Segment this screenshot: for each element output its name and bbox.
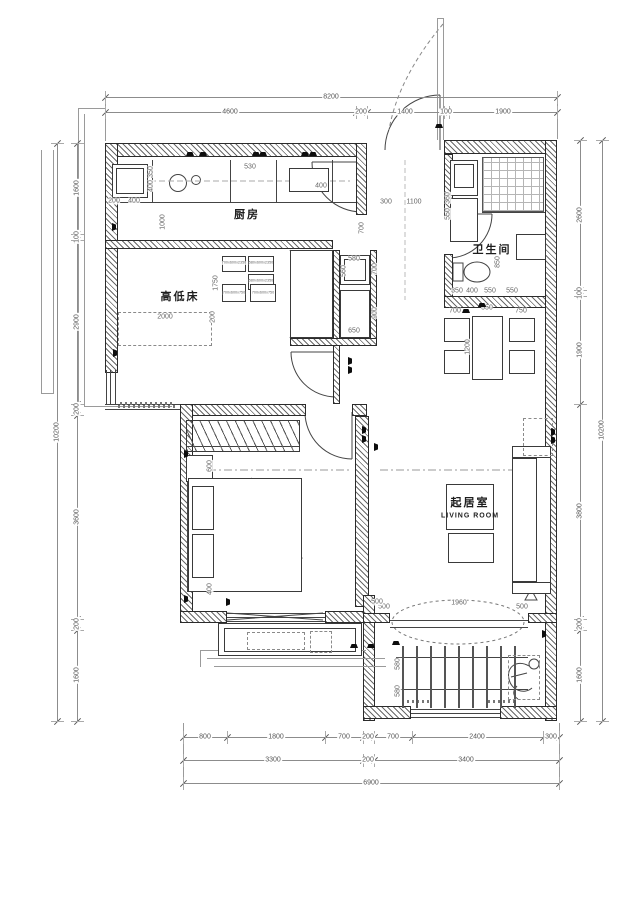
dimension-label: 100 xyxy=(577,286,584,300)
coffee-table xyxy=(448,533,494,563)
wall-balcony-top-right xyxy=(528,613,557,623)
dimension-line xyxy=(580,140,581,721)
dimension-label: 200 xyxy=(354,109,368,116)
inner-dimension-label: 1100 xyxy=(406,199,421,206)
exterior-line xyxy=(41,393,54,394)
balcony-threshold xyxy=(390,627,528,628)
counter-sep xyxy=(332,160,333,202)
extension-line xyxy=(596,140,609,141)
wall-bedroom-bottom-left xyxy=(180,611,227,623)
dimension-label: 100 xyxy=(74,230,81,244)
extension-line xyxy=(105,91,106,104)
extension-line xyxy=(183,754,184,767)
window-balcony xyxy=(411,717,500,718)
extension-line xyxy=(183,777,184,790)
window-bedroom xyxy=(227,617,325,618)
window-left xyxy=(106,370,107,404)
dimension-label: 1900 xyxy=(494,109,512,116)
dimension-label: 2400 xyxy=(468,734,486,741)
dimension-label: 800 xyxy=(198,734,212,741)
sofa-armrest xyxy=(512,582,551,594)
inner-dimension-label: 300 xyxy=(380,199,392,206)
inner-dimension-label: 200 xyxy=(210,311,217,323)
window-left xyxy=(110,370,111,404)
inner-dimension-label: 700x600x750 xyxy=(223,291,245,295)
dimension-label: 100 xyxy=(439,109,453,116)
dimension-label: 200 xyxy=(577,617,584,631)
extension-line xyxy=(574,140,587,141)
inner-dimension-label: 1960 xyxy=(451,600,467,607)
extension-line xyxy=(71,721,84,722)
window-left xyxy=(115,370,116,404)
dimension-line xyxy=(105,112,557,113)
extension-line xyxy=(71,143,84,144)
dimension-label: 8200 xyxy=(322,94,340,101)
extension-line xyxy=(557,106,558,119)
counter-sep xyxy=(230,160,231,202)
extension-line xyxy=(596,721,609,722)
inner-dimension-label: 580 xyxy=(395,658,402,670)
dimension-label: 1600 xyxy=(74,666,81,684)
inner-dimension-label: 750 xyxy=(515,308,527,315)
washer-inner xyxy=(454,164,474,188)
fridge-inner xyxy=(116,168,144,194)
living-rug-ellipse xyxy=(392,600,524,644)
dimension-label: 1800 xyxy=(267,734,285,741)
extension-line xyxy=(325,731,326,744)
inner-dimension-label: 900 xyxy=(372,307,379,319)
inner-dimension-label: 580x600x2350 xyxy=(249,279,273,283)
dimension-label: 200 xyxy=(74,402,81,416)
room-label: LIVING ROOM xyxy=(441,513,499,520)
extension-line xyxy=(559,731,560,744)
shower-tile-grid xyxy=(482,157,544,212)
dimension-label: 3600 xyxy=(74,508,81,526)
extension-line xyxy=(574,721,587,722)
wall-storage-bottom xyxy=(290,338,377,346)
window-balcony xyxy=(411,709,500,710)
pillow xyxy=(192,534,214,578)
inner-dimension-label: 550 xyxy=(484,288,496,295)
wall-bath-bottom xyxy=(444,296,557,308)
room-label: 高低床 xyxy=(161,288,200,304)
dimension-label: 1400 xyxy=(396,109,414,116)
extension-line xyxy=(412,731,413,744)
inner-dimension-label: 2000 xyxy=(157,314,173,321)
dimension-label: 700 xyxy=(386,734,400,741)
sill-bunk xyxy=(105,409,180,410)
inner-dimension-label: 550 xyxy=(506,288,518,295)
counter-edge xyxy=(118,202,356,203)
inner-dimension-label: 500 xyxy=(516,604,528,611)
room-label: 厨房 xyxy=(234,206,260,222)
wall-kitchen-right xyxy=(356,143,367,215)
counter-sep xyxy=(276,160,277,202)
inner-dimension-label: 1200 xyxy=(465,339,472,355)
dimension-label: 3400 xyxy=(457,757,475,764)
inner-dimension-label: 580 xyxy=(395,685,402,697)
extension-line xyxy=(227,731,228,744)
inner-dimension-label: 850 xyxy=(495,256,502,268)
dimension-label: 1600 xyxy=(577,666,584,684)
extension-line xyxy=(105,106,106,119)
inner-dimension-label: 1000 xyxy=(160,214,167,230)
inner-dimension-label: 400 xyxy=(315,183,327,190)
tall-cabinet xyxy=(290,250,333,338)
drying-rack-slats xyxy=(402,674,520,708)
exterior-line xyxy=(53,150,54,394)
wardrobe xyxy=(186,420,300,452)
kitchen-sink-icon xyxy=(170,175,201,192)
extension-line xyxy=(574,404,587,405)
dimension-label: 10200 xyxy=(599,419,606,440)
inner-dimension-label: 400 xyxy=(466,288,478,295)
dining-chair xyxy=(509,350,535,374)
extension-line xyxy=(51,143,64,144)
inner-dimension-label: 530 xyxy=(244,164,256,171)
wall-bedroom-top xyxy=(180,404,306,416)
entry-door-arc xyxy=(385,95,440,150)
window-bedroom xyxy=(227,621,325,622)
bay-step-line xyxy=(200,650,201,667)
bath-sink-counter xyxy=(516,234,546,260)
inner-dimension-label: 360 xyxy=(445,192,452,204)
inner-dimension-label: 700 xyxy=(372,263,379,275)
entry-axis xyxy=(437,18,438,140)
shower-edge xyxy=(482,212,545,213)
dryer-column xyxy=(450,198,478,242)
inner-dimension-label: 350 xyxy=(451,288,463,295)
dimension-label: 3300 xyxy=(264,757,282,764)
inner-dimension-label: 700 xyxy=(359,222,366,234)
dining-table xyxy=(472,316,503,380)
dimension-label: 200 xyxy=(74,617,81,631)
inner-dimension-label: 580 xyxy=(348,256,360,263)
wall-balcony-top-left xyxy=(363,613,390,623)
dimension-label: 2900 xyxy=(74,313,81,331)
inner-dimension-label: 700x600x750 xyxy=(252,291,274,295)
bay-dashed-box xyxy=(310,631,332,653)
inner-dimension-label: 350 xyxy=(148,166,155,178)
inner-dimension-label: 650 xyxy=(348,328,360,335)
insulation-dots xyxy=(120,402,172,405)
entry-axis xyxy=(443,18,444,140)
bedroom-door-arc xyxy=(305,412,352,459)
wall-bedroom-bottom-right xyxy=(325,611,367,623)
insulation-dots xyxy=(118,405,176,408)
wall-storage-left xyxy=(333,250,340,404)
dimension-label: 300 xyxy=(544,734,558,741)
room-label: 起居室 xyxy=(451,494,490,510)
extension-line xyxy=(557,91,558,104)
dimension-label: 1900 xyxy=(577,341,584,359)
dimension-label: 4600 xyxy=(221,109,239,116)
inner-dimension-label: 560 xyxy=(341,265,348,277)
balcony-threshold xyxy=(390,620,528,621)
inner-dimension-label: 400 xyxy=(148,180,155,192)
bay-dashed-box xyxy=(247,632,305,650)
dimension-label: 10200 xyxy=(54,421,61,442)
dimension-label: 200 xyxy=(361,757,375,764)
wall-kitchen-bottom xyxy=(105,240,333,249)
wall-bedroom-living xyxy=(355,416,369,607)
wall-bedroom-top-pier xyxy=(352,404,367,416)
dining-chair xyxy=(509,318,535,342)
inner-dimension-label: 400 xyxy=(128,198,140,205)
dimension-label: 1600 xyxy=(74,179,81,197)
inner-dimension-label: 580x600x2350 xyxy=(249,261,273,265)
dimension-label: 2600 xyxy=(577,206,584,224)
exterior-line xyxy=(78,108,106,109)
pillow xyxy=(192,486,214,530)
exterior-line xyxy=(78,108,79,406)
inner-dimension-label: 400 xyxy=(207,583,214,595)
dimension-label: 700 xyxy=(337,734,351,741)
dimension-label: 3800 xyxy=(577,502,584,520)
dimension-label: 200 xyxy=(361,734,375,741)
wall-top-kitchen xyxy=(105,143,367,157)
sofa-back xyxy=(536,452,551,588)
ac-unit-dashed xyxy=(523,418,553,456)
inner-dimension-label: 600 xyxy=(207,460,214,472)
toilet-icon xyxy=(453,262,490,282)
inner-dimension-label: 550 xyxy=(445,208,452,220)
inner-dimension-label: 700 xyxy=(449,308,461,315)
bunkroom-door-arc xyxy=(291,352,336,397)
balcony-dashed-box xyxy=(508,655,540,700)
bay-step-line xyxy=(214,666,386,667)
floor-plan-canvas: 8200460020014001001900102001600100290020… xyxy=(0,0,640,905)
dimension-label: 6900 xyxy=(362,780,380,787)
window-balcony xyxy=(411,713,500,714)
inner-dimension-label: 700x600x2350 xyxy=(222,261,246,265)
inner-dimension-label: 200 xyxy=(108,198,120,205)
wall-top-bathroom xyxy=(444,140,557,154)
bay-step-line xyxy=(207,658,385,659)
extension-line xyxy=(559,777,560,790)
exterior-line xyxy=(84,114,85,406)
window-bedroom xyxy=(227,613,325,614)
inner-dimension-label: 1750 xyxy=(213,275,220,291)
extension-line xyxy=(51,721,64,722)
sofa-seat xyxy=(512,458,537,582)
extension-line xyxy=(559,754,560,767)
extension-line xyxy=(183,731,184,744)
inner-dimension-label: 500 xyxy=(371,599,383,606)
exterior-line xyxy=(41,150,42,394)
entry-axis xyxy=(437,18,444,19)
room-label: 卫生间 xyxy=(473,241,512,257)
